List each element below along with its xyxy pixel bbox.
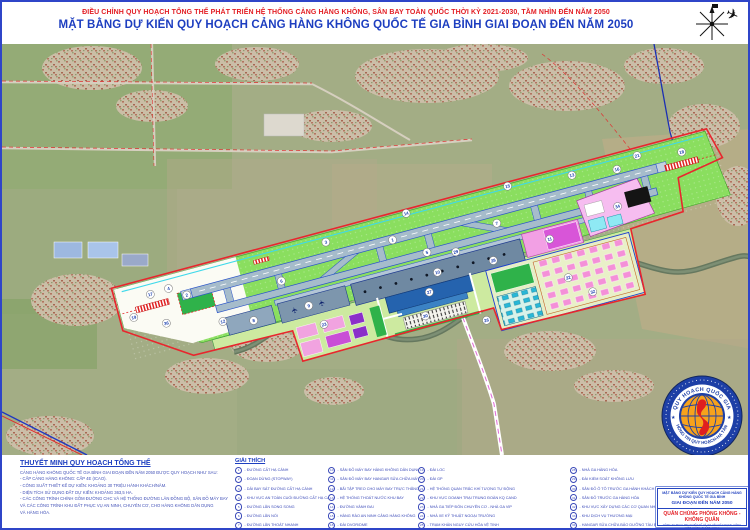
legend-item-label: - ĐƯỜNG LĂN SONG SONG [244, 505, 294, 509]
titleblock-agency: QUÂN CHỦNG PHÒNG KHÔNG - KHÔNG QUÂN [659, 511, 745, 523]
legend-item-number: 5 [235, 503, 242, 510]
legend-item-label: - KHU VỰC AN TOÀN CUỐI ĐƯỜNG CẤT HẠ CÁNH… [244, 496, 328, 500]
legend-item-label: - ĐÀI DVOR/DME [337, 523, 367, 527]
legend-item: 3- DẢI BAY SÁT ĐƯỜNG CẤT HẠ CÁNH [235, 485, 328, 492]
legend-item: 20- ĐÀI GP [418, 476, 570, 483]
notes-lines: CẢNG HÀNG KHÔNG QUỐC TẾ GIA BÌNH GIAI ĐO… [20, 470, 226, 517]
legend-item-number: 2 [235, 476, 242, 483]
legend-item: 19- ĐÀI LOC [418, 467, 570, 474]
legend-item-number: 29 [570, 476, 577, 483]
legend-item-number: 11 [328, 476, 335, 483]
legend-item: 11- SÂN ĐỖ MÁY BAY HANGAR SỬA CHỮA MÁY B… [328, 476, 418, 483]
legend-item: 13- HỆ THỐNG THOÁT NƯỚC KHU BAY [328, 494, 418, 501]
legend-item-number: 25 [418, 522, 425, 529]
legend-item-number: 34 [570, 522, 577, 529]
legend-item-label: - ĐÀI GP [427, 477, 442, 481]
legend-item-label: - ĐƯỜNG CẤT HẠ CÁNH [244, 468, 288, 472]
legend-item: 24- NHÀ XE KỸ THUẬT NGOẠI TRƯỜNG [418, 512, 570, 519]
legend-item-label: - HANGAR SỬA CHỮA BẢO DƯỠNG TÀU BAY [579, 523, 661, 527]
legend-column: 1- ĐƯỜNG CẤT HẠ CÁNH2- ĐOẠN DỪNG (STOPWA… [235, 467, 328, 530]
drawing-title: MẶT BẰNG DỰ KIẾN QUY HOẠCH CẢNG HÀNG KHÔ… [2, 19, 690, 31]
note-line: VÀ CÁC CÔNG TRÌNH KHU ĐẤT PHỤC VỤ AN NIN… [20, 503, 226, 510]
legend-item-number: 10 [328, 467, 335, 474]
legend-item-label: - TRẠM KHẨN NGUY CỨU HỎA VỆ TINH [427, 523, 498, 527]
legend-item-label: - SÂN ĐỖ MÁY BAY HÀNG KHÔNG DÂN DỤNG [337, 468, 418, 472]
legend-item-label: - NHÀ XE KỸ THUẬT NGOẠI TRƯỜNG [427, 514, 495, 518]
title-block: MẶT BẰNG DỰ KIẾN QUY HOẠCH CẢNG HÀNG KHÔ… [657, 488, 747, 526]
drawing-footer: THUYẾT MINH QUY HOẠCH TỔNG THỂ CẢNG HÀNG… [2, 455, 748, 528]
legend-item-label: - HỆ THỐNG THOÁT NƯỚC KHU BAY [337, 496, 404, 500]
legend-item: 1- ĐƯỜNG CẤT HẠ CÁNH [235, 467, 328, 474]
legend-item-number: 12 [328, 485, 335, 492]
legend-item-label: - NHÀ GA TIẾP ĐÓN CHUYÊN CƠ - NHÀ GA VIP [427, 505, 512, 509]
legend-item-number: 33 [570, 512, 577, 519]
legend-item-number: 6 [235, 512, 242, 519]
legend-item-number: 21 [418, 485, 425, 492]
drawing-header: ĐIỀU CHỈNH QUY HOẠCH TỔNG THỂ PHÁT TRIỂN… [2, 2, 690, 44]
legend-item: 14- ĐƯỜNG VÀNH ĐAI [328, 503, 418, 510]
legend-item-label: - ĐƯỜNG LĂN NỐI [244, 514, 278, 518]
legend-item-label: - ĐƯỜNG LĂN THOÁT NHANH [244, 523, 298, 527]
titleblock-divider [658, 508, 746, 509]
legend-item-label: - HỆ THỐNG QUAN TRẮC KHÍ TƯỢNG TỰ ĐỘNG [427, 487, 515, 491]
legend-item: 21- HỆ THỐNG QUAN TRẮC KHÍ TƯỢNG TỰ ĐỘNG [418, 485, 570, 492]
legend-item: 2- ĐOẠN DỪNG (STOPWAY) [235, 476, 328, 483]
legend-item-number: 19 [418, 467, 425, 474]
legend-item: 12- BÃI TẬP TREO CHO MÁY BAY TRỰC THĂNG [328, 485, 418, 492]
legend-title: GIẢI THÍCH [235, 458, 738, 464]
legend-item-label: - ĐÀI LOC [427, 468, 445, 472]
legend-item: 16- ĐÀI DVOR/DME [328, 522, 418, 529]
legend-item-number: 13 [328, 494, 335, 501]
note-line: - CẤP CẢNG HÀNG KHÔNG: CẤP 4E (ICAO). [20, 476, 226, 483]
stamp-star-right: ★ [727, 415, 732, 421]
planning-notes: THUYẾT MINH QUY HOẠCH TỔNG THỂ CẢNG HÀNG… [20, 460, 226, 517]
legend-item: 6- ĐƯỜNG LĂN NỐI [235, 512, 328, 519]
titleblock-company: CÔNG TY TNHH MTV THIẾT KẾ VÀ TƯ VẤN XÂY … [659, 524, 745, 530]
legend-item-number: 15 [328, 512, 335, 519]
legend-item-number: 4 [235, 494, 242, 501]
legend-item-number: 3 [235, 485, 242, 492]
legend-item: 22- KHU VỰC DOANH TRẠI TRUNG ĐOÀN KQ CAN… [418, 494, 570, 501]
compass-north-icon: ✈ [688, 2, 748, 44]
legend-item: 29- ĐÀI KIỂM SOÁT KHÔNG LƯU [570, 476, 738, 483]
legend-item-label: - ĐOẠN DỪNG (STOPWAY) [244, 477, 292, 481]
note-line: - CÁC CÔNG TRÌNH CHÍNH GỒM ĐƯỜNG CHC VÀ … [20, 496, 226, 503]
legend-item: 23- NHÀ GA TIẾP ĐÓN CHUYÊN CƠ - NHÀ GA V… [418, 503, 570, 510]
legend-item: 15- HÀNG RÀO AN NINH CẢNG HÀNG KHÔNG [328, 512, 418, 519]
legend-item-number: 28 [570, 467, 577, 474]
airplane-icon: ✈ [723, 5, 741, 26]
legend-item-number: 16 [328, 522, 335, 529]
legend-item: 25- TRẠM KHẨN NGUY CỨU HỎA VỆ TINH [418, 522, 570, 529]
aerial-map: ✈ ✈ [2, 44, 750, 455]
legend-item-label: - HÀNG RÀO AN NINH CẢNG HÀNG KHÔNG [337, 514, 415, 518]
legend-item-number: 1 [235, 467, 242, 474]
legend-item-label: - SÂN ĐỖ MÁY BAY HANGAR SỬA CHỮA MÁY BAY [337, 477, 418, 481]
legend-item-label: - DẢI BAY SÁT ĐƯỜNG CẤT HẠ CÁNH [244, 487, 312, 491]
legend-item: 5- ĐƯỜNG LĂN SONG SONG [235, 503, 328, 510]
legend-item-number: 23 [418, 503, 425, 510]
legend-item: 10- SÂN ĐỖ MÁY BAY HÀNG KHÔNG DÂN DỤNG [328, 467, 418, 474]
legend-item-label: - ĐÀI KIỂM SOÁT KHÔNG LƯU [579, 477, 633, 481]
legend-column: 19- ĐÀI LOC20- ĐÀI GP21- HỆ THỐNG QUAN T… [418, 467, 570, 530]
legend-item-number: 24 [418, 512, 425, 519]
drawing-subtitle: ĐIỀU CHỈNH QUY HOẠCH TỔNG THỂ PHÁT TRIỂN… [2, 9, 690, 16]
legend-item-number: 7 [235, 522, 242, 529]
legend-item-number: 22 [418, 494, 425, 501]
legend-item-number: 32 [570, 503, 577, 510]
titleblock-line1: MẶT BẰNG DỰ KIẾN QUY HOẠCH CẢNG HÀNG KHÔ… [659, 491, 745, 500]
legend-item-label: - SÂN ĐỖ TRƯỚC GA HÀNG HÓA [579, 496, 639, 500]
legend-item: 7- ĐƯỜNG LĂN THOÁT NHANH [235, 522, 328, 529]
legend-item: 4- KHU VỰC AN TOÀN CUỐI ĐƯỜNG CẤT HẠ CÁN… [235, 494, 328, 501]
legend-item-label: - KHU DỊCH VỤ THƯƠNG MẠI [579, 514, 632, 518]
note-line: VÀ HÀNG HÓA. [20, 510, 226, 517]
legend-item-number: 20 [418, 476, 425, 483]
note-line: - CÔNG SUẤT THIẾT KẾ DỰ KIẾN: KHOẢNG 30 … [20, 483, 226, 490]
legend-item-label: - KHU VỰC DOANH TRẠI TRUNG ĐOÀN KQ CAND [427, 496, 516, 500]
planning-drawing-page: ĐIỀU CHỈNH QUY HOẠCH TỔNG THỂ PHÁT TRIỂN… [0, 0, 750, 530]
legend-item-number: 30 [570, 485, 577, 492]
stamp-star-left: ★ [671, 415, 676, 421]
legend-item-number: 14 [328, 503, 335, 510]
legend-item-label: - NHÀ GA HÀNG HÓA [579, 468, 617, 472]
legend-item-label: - BÃI TẬP TREO CHO MÁY BAY TRỰC THĂNG [337, 487, 418, 491]
legend-item-label: - ĐƯỜNG VÀNH ĐAI [337, 505, 373, 509]
titleblock-line2: GIAI ĐOẠN ĐẾN NĂM 2050 [659, 501, 745, 506]
legend-item: 28- NHÀ GA HÀNG HÓA [570, 467, 738, 474]
notes-title: THUYẾT MINH QUY HOẠCH TỔNG THỂ [20, 460, 226, 467]
note-line: CẢNG HÀNG KHÔNG QUỐC TẾ GIA BÌNH GIAI ĐO… [20, 470, 226, 477]
legend-item-label: - SÂN ĐỖ Ô TÔ TRƯỚC GA HÀNH KHÁCH [579, 487, 654, 491]
legend-column: 10- SÂN ĐỖ MÁY BAY HÀNG KHÔNG DÂN DỤNG11… [328, 467, 418, 530]
note-line: - DIỆN TÍCH SỬ DỤNG ĐẤT DỰ KIẾN: KHOẢNG … [20, 490, 226, 497]
legend-item-number: 31 [570, 494, 577, 501]
